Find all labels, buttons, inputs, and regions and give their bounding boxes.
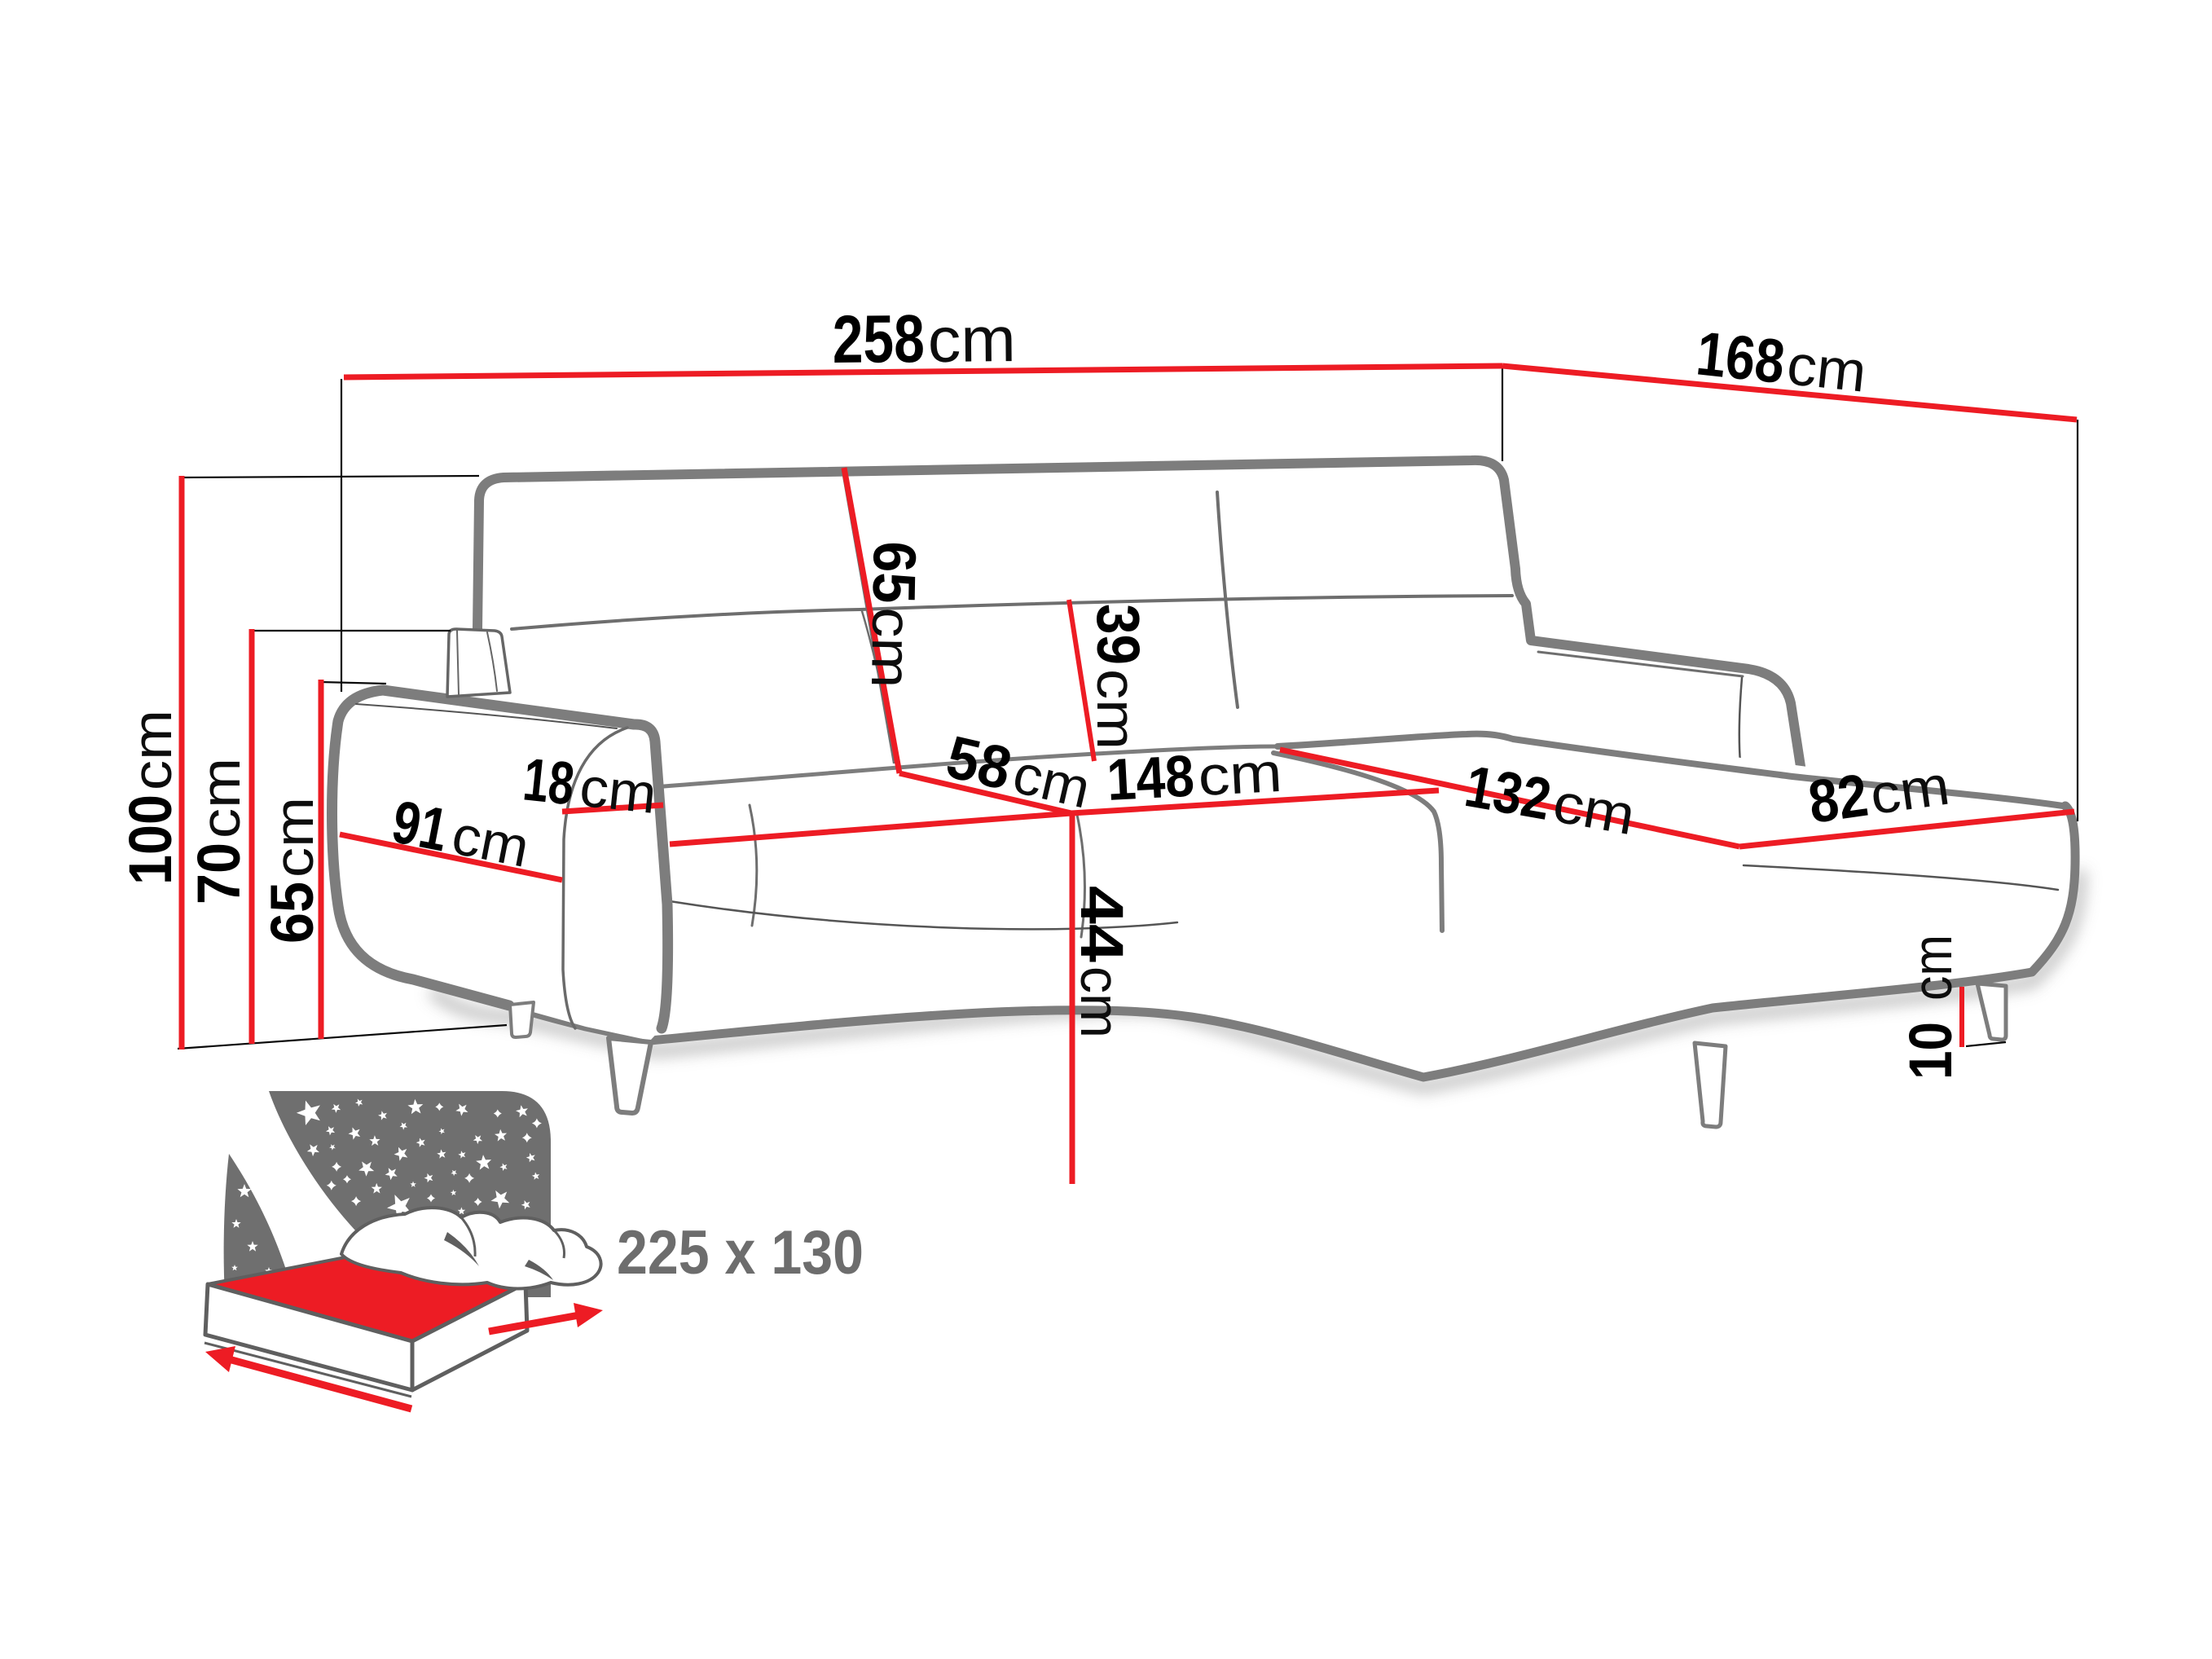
svg-text:65: 65 <box>258 882 326 944</box>
svg-text:65: 65 <box>860 541 929 604</box>
svg-text:70: 70 <box>185 843 253 904</box>
svg-text:cm: cm <box>263 797 325 878</box>
svg-text:225 x 130: 225 x 130 <box>617 1218 864 1287</box>
svg-text:18: 18 <box>520 745 577 817</box>
svg-text:cm: cm <box>1867 755 1954 827</box>
svg-text:44: 44 <box>1068 886 1136 962</box>
svg-text:cm: cm <box>860 607 923 689</box>
svg-text:82: 82 <box>1805 761 1872 836</box>
svg-text:cm: cm <box>1902 935 1964 1001</box>
svg-text:cm: cm <box>121 710 183 790</box>
svg-text:cm: cm <box>1784 332 1870 404</box>
svg-text:cm: cm <box>1197 741 1284 807</box>
svg-text:100: 100 <box>117 794 184 885</box>
svg-text:cm: cm <box>1085 669 1147 750</box>
svg-text:148: 148 <box>1106 743 1196 812</box>
svg-text:168: 168 <box>1693 319 1788 397</box>
svg-text:258: 258 <box>832 301 925 377</box>
svg-text:cm: cm <box>577 756 659 825</box>
svg-text:10: 10 <box>1897 1022 1964 1080</box>
svg-text:cm: cm <box>190 758 252 838</box>
svg-text:39: 39 <box>1084 604 1152 665</box>
svg-text:cm: cm <box>1069 966 1131 1038</box>
svg-text:cm: cm <box>927 303 1016 376</box>
